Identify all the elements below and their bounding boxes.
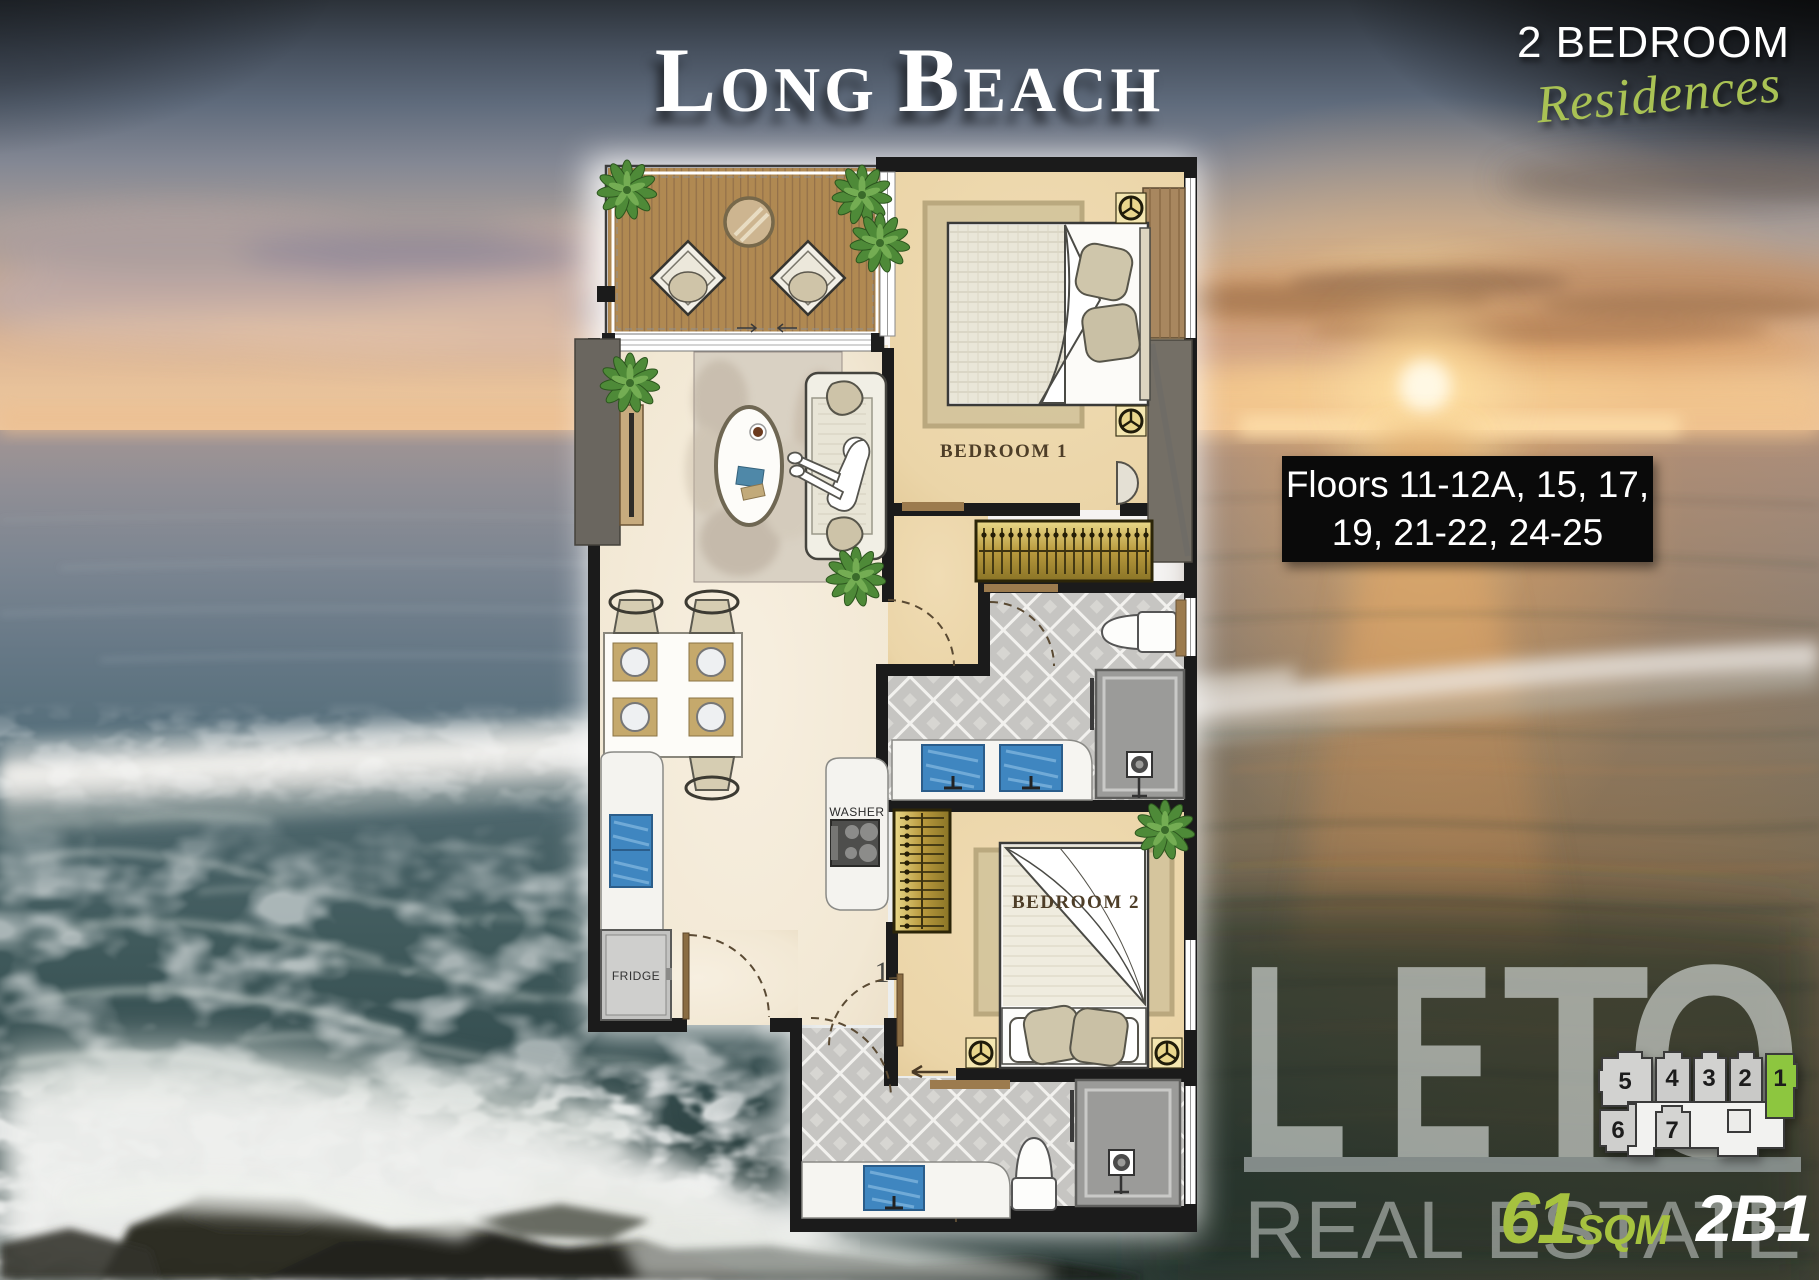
- svg-text:WASHER: WASHER: [829, 805, 884, 819]
- svg-text:3: 3: [1702, 1065, 1715, 1092]
- svg-text:1: 1: [875, 956, 890, 989]
- svg-text:FRIDGE: FRIDGE: [612, 969, 660, 983]
- svg-text:7: 7: [1665, 1117, 1678, 1144]
- svg-text:6: 6: [1611, 1117, 1624, 1144]
- svg-text:4: 4: [1665, 1065, 1679, 1092]
- svg-text:2: 2: [1738, 1065, 1751, 1092]
- svg-text:BEDROOM 2: BEDROOM 2: [1012, 892, 1140, 913]
- svg-text:1: 1: [1773, 1065, 1786, 1092]
- svg-text:BEDROOM 1: BEDROOM 1: [940, 441, 1068, 462]
- svg-text:5: 5: [1618, 1068, 1631, 1095]
